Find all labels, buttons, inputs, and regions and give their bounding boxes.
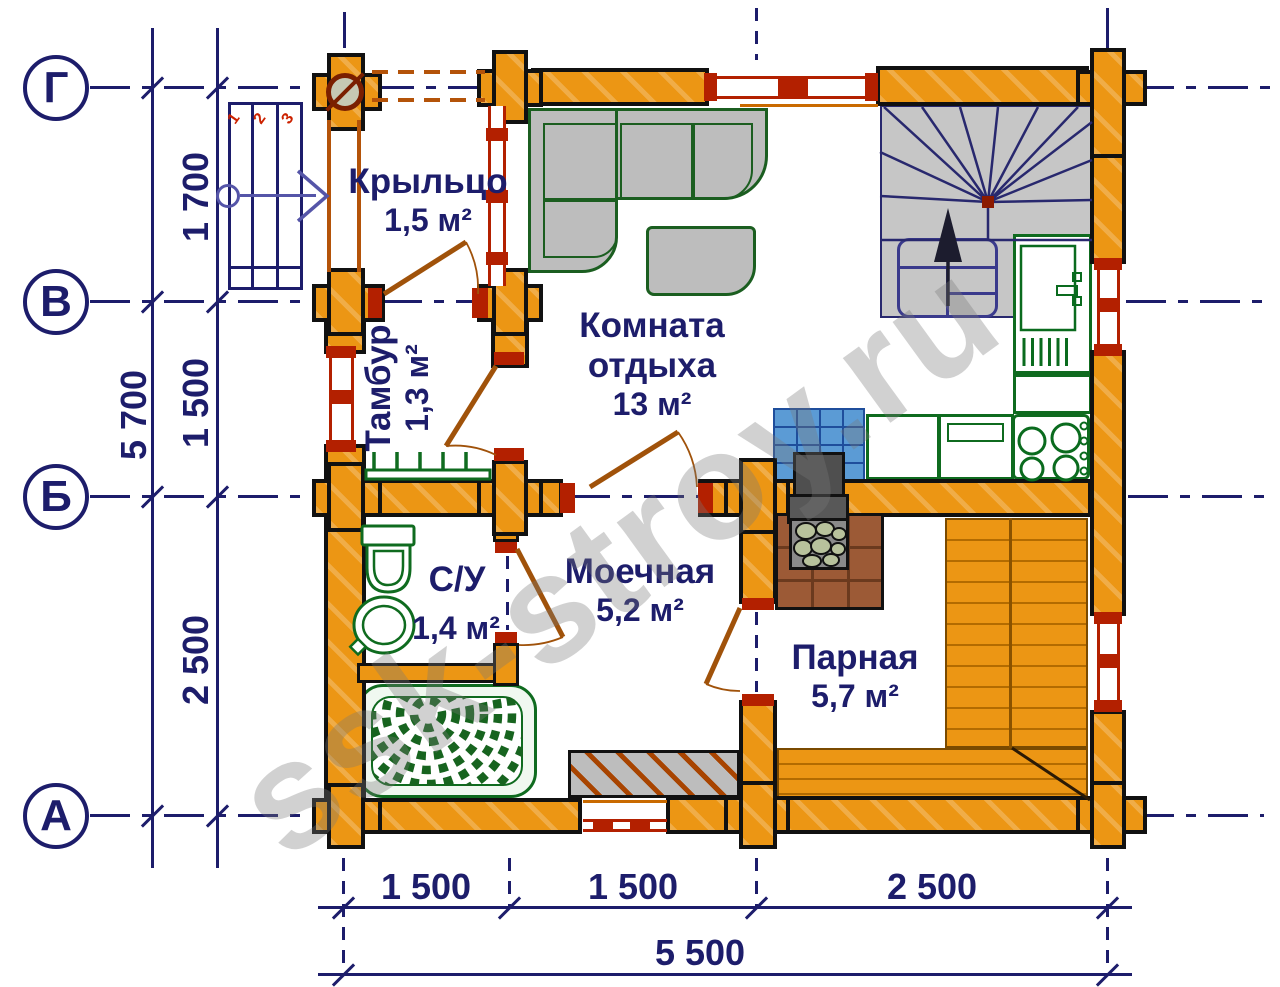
cooktop: [1012, 414, 1090, 480]
dim-left-seg-2: 1 500: [175, 343, 217, 463]
door-opening-line: [755, 612, 758, 692]
room-name: Комната: [542, 306, 762, 346]
window-top: [707, 96, 878, 99]
axis-line-v-right: [1126, 300, 1270, 303]
axis-line-b-gap: [570, 495, 698, 498]
log-cross: [1090, 781, 1126, 849]
grid-stub-bottom-1: [342, 858, 345, 970]
sofa-cushion: [693, 123, 753, 200]
window-sill-line: [740, 104, 878, 107]
window-sash: [1098, 654, 1118, 668]
grid-stub-top-3: [1106, 8, 1109, 50]
label-wc: С/У: [407, 560, 507, 600]
wall-top-right: [876, 66, 1089, 106]
sofa-cushion: [620, 123, 693, 200]
window-jamb: [1094, 258, 1122, 270]
grid-stub-top-1: [343, 12, 346, 48]
sofa-cushion: [543, 200, 618, 258]
wc-wall-bottom: [357, 663, 513, 683]
log-cross: [739, 458, 777, 534]
label-porch: Крыльцо 1,5 м²: [338, 162, 518, 239]
window-sash: [778, 79, 808, 96]
window-jamb: [1094, 612, 1122, 624]
porch-railing-top: [372, 98, 485, 102]
door-jamb: [494, 352, 524, 365]
log-cross: [739, 781, 777, 849]
axis-circle-b: Б: [23, 464, 89, 530]
room-area: 1,5 м²: [338, 202, 518, 239]
dim-bottom-seg-3: 2 500: [872, 866, 992, 908]
label-steam: Парная 5,7 м²: [775, 638, 935, 715]
log-cross-corner-v: [1090, 48, 1126, 158]
axis-line-v: [90, 300, 322, 303]
room-area: 1,3 м²: [399, 303, 436, 473]
wall-left-lower: [324, 514, 366, 802]
steam-bench-right: [945, 518, 1088, 748]
dim-bottom-seg-1: 1 500: [366, 866, 486, 908]
door-jamb: [742, 694, 774, 706]
window-jamb: [326, 440, 356, 452]
window-jamb: [1094, 700, 1122, 712]
door-porch: [384, 242, 478, 294]
door-jamb: [742, 598, 774, 610]
label-wc-area: 1,4 м²: [396, 610, 516, 647]
room-name: Крыльцо: [338, 162, 518, 202]
room-area: 5,7 м²: [775, 678, 935, 715]
door-jamb: [494, 448, 524, 461]
axis-line-a-right: [1134, 814, 1264, 817]
window-jamb: [326, 346, 356, 358]
porch-railing-left: [327, 120, 331, 272]
room-name: Парная: [775, 638, 935, 678]
axis-line-b: [90, 495, 322, 498]
door-jamb: [698, 483, 713, 513]
door-jamb: [472, 288, 488, 318]
dim-left-seg-3: 2 500: [175, 600, 217, 720]
door-jamb: [495, 542, 517, 553]
understairs-bench-line: [946, 292, 998, 295]
sauna-stove-body: [793, 452, 845, 498]
door-tambour: [446, 366, 496, 455]
entry-step-edge: [228, 266, 303, 269]
axis-line-g-gap: [374, 86, 484, 89]
dim-bottom-seg-2: 1 500: [573, 866, 693, 908]
door-rest-room: [590, 432, 697, 487]
room-area: 5,2 м²: [550, 592, 730, 629]
glazing-sash: [486, 252, 508, 265]
window-sash: [630, 820, 650, 830]
room-area: 13 м²: [542, 386, 762, 423]
dim-left-total: 5 700: [113, 355, 155, 475]
label-rest-room: Комната отдыха 13 м²: [542, 306, 762, 423]
log-cross: [492, 460, 528, 536]
floor-plan: 1 700 1 500 2 500 5 700 1 500 1 500 2 50…: [0, 0, 1280, 987]
axis-circle-v: В: [23, 269, 89, 335]
axis-line-a: [90, 814, 316, 817]
dim-bottom-total: 5 500: [640, 932, 760, 974]
label-washing: Моечная 5,2 м²: [550, 552, 730, 629]
axis-line-g-right: [1134, 86, 1270, 89]
fridge: [1013, 234, 1092, 374]
glazing-sash: [486, 128, 508, 141]
porch-railing-top: [372, 70, 485, 74]
label-tambour: Тамбур 1,3 м²: [359, 303, 451, 473]
window-sash: [1098, 298, 1118, 312]
wall-right-seg2: [1090, 350, 1126, 616]
window-sill-line: [583, 800, 667, 803]
window-sash: [593, 820, 613, 830]
grid-stub-bottom-3: [755, 858, 758, 908]
kitchen-counter: [866, 414, 940, 480]
grid-stub-bottom-4: [1106, 858, 1109, 970]
log-cross: [327, 783, 365, 849]
room-name: Моечная: [550, 552, 730, 592]
axis-line-g: [90, 86, 316, 89]
wall-top-left: [531, 68, 709, 106]
washing-bench: [568, 750, 740, 798]
window-jamb: [865, 73, 878, 101]
window-jamb: [704, 73, 717, 101]
window-sash: [330, 390, 352, 404]
steam-bench-bottom: [777, 748, 1088, 802]
room-name: Тамбур: [359, 303, 399, 473]
sauna-stove-stones-box: [789, 518, 849, 570]
shower-tray-inner: [371, 696, 523, 786]
axis-circle-g: Г: [23, 55, 89, 121]
grid-stub-top-2: [755, 8, 758, 60]
wc-wall-stub-bottom: [493, 643, 519, 686]
axis-line-b-right: [1128, 495, 1270, 498]
coffee-table: [646, 226, 756, 296]
sofa-cushion: [543, 123, 618, 200]
dim-left-seg-1: 1 700: [175, 137, 217, 257]
room-name: отдыха: [542, 346, 762, 386]
entry-direction-circle: [216, 184, 240, 208]
grid-stub-bottom-2: [508, 858, 511, 908]
entry-direction-line: [240, 194, 316, 197]
axis-circle-a: А: [23, 783, 89, 849]
window-jamb: [1094, 344, 1122, 356]
drawer-front: [947, 423, 1004, 442]
steam-bench-divider: [1009, 518, 1012, 748]
door-jamb: [560, 483, 575, 513]
kitchen-cabinet: [1013, 374, 1092, 414]
